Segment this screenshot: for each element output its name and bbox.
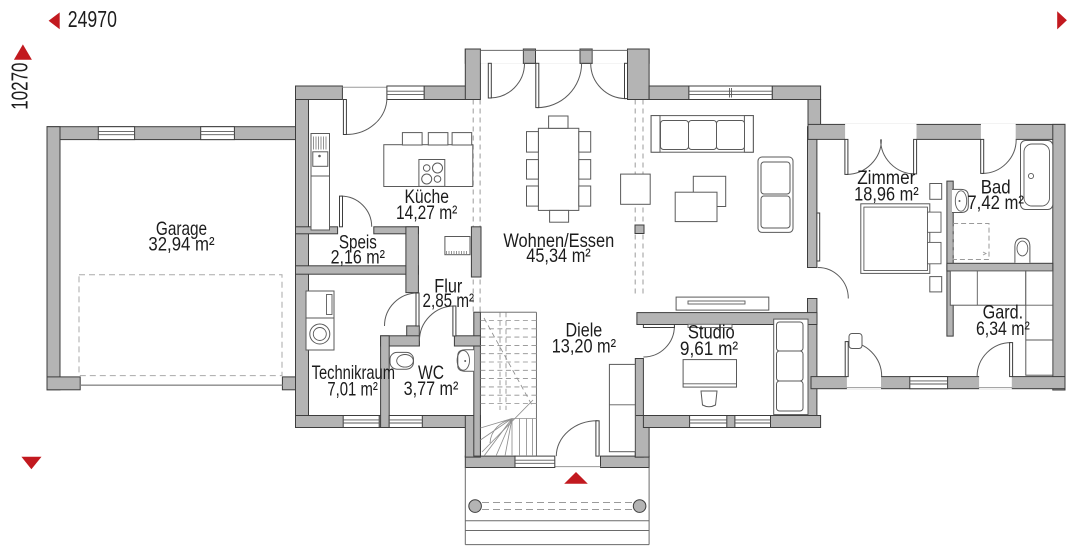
svg-text:2,16 m²: 2,16 m²: [331, 246, 386, 268]
svg-text:18,96 m²: 18,96 m²: [854, 184, 919, 206]
svg-text:24970: 24970: [68, 6, 117, 32]
svg-text:6,34 m²: 6,34 m²: [976, 318, 1030, 340]
svg-text:32,94 m²: 32,94 m²: [148, 233, 215, 255]
svg-text:9,61 m²: 9,61 m²: [680, 338, 739, 360]
svg-text:14,27 m²: 14,27 m²: [396, 202, 458, 224]
svg-text:13,20 m²: 13,20 m²: [552, 336, 617, 358]
svg-text:7,42 m²: 7,42 m²: [967, 192, 1024, 214]
svg-text:2,85 m²: 2,85 m²: [423, 290, 475, 312]
svg-text:10270: 10270: [7, 62, 33, 109]
svg-text:3,77 m²: 3,77 m²: [404, 378, 459, 400]
svg-text:7,01 m²: 7,01 m²: [327, 378, 378, 400]
svg-text:45,34 m²: 45,34 m²: [526, 245, 591, 267]
